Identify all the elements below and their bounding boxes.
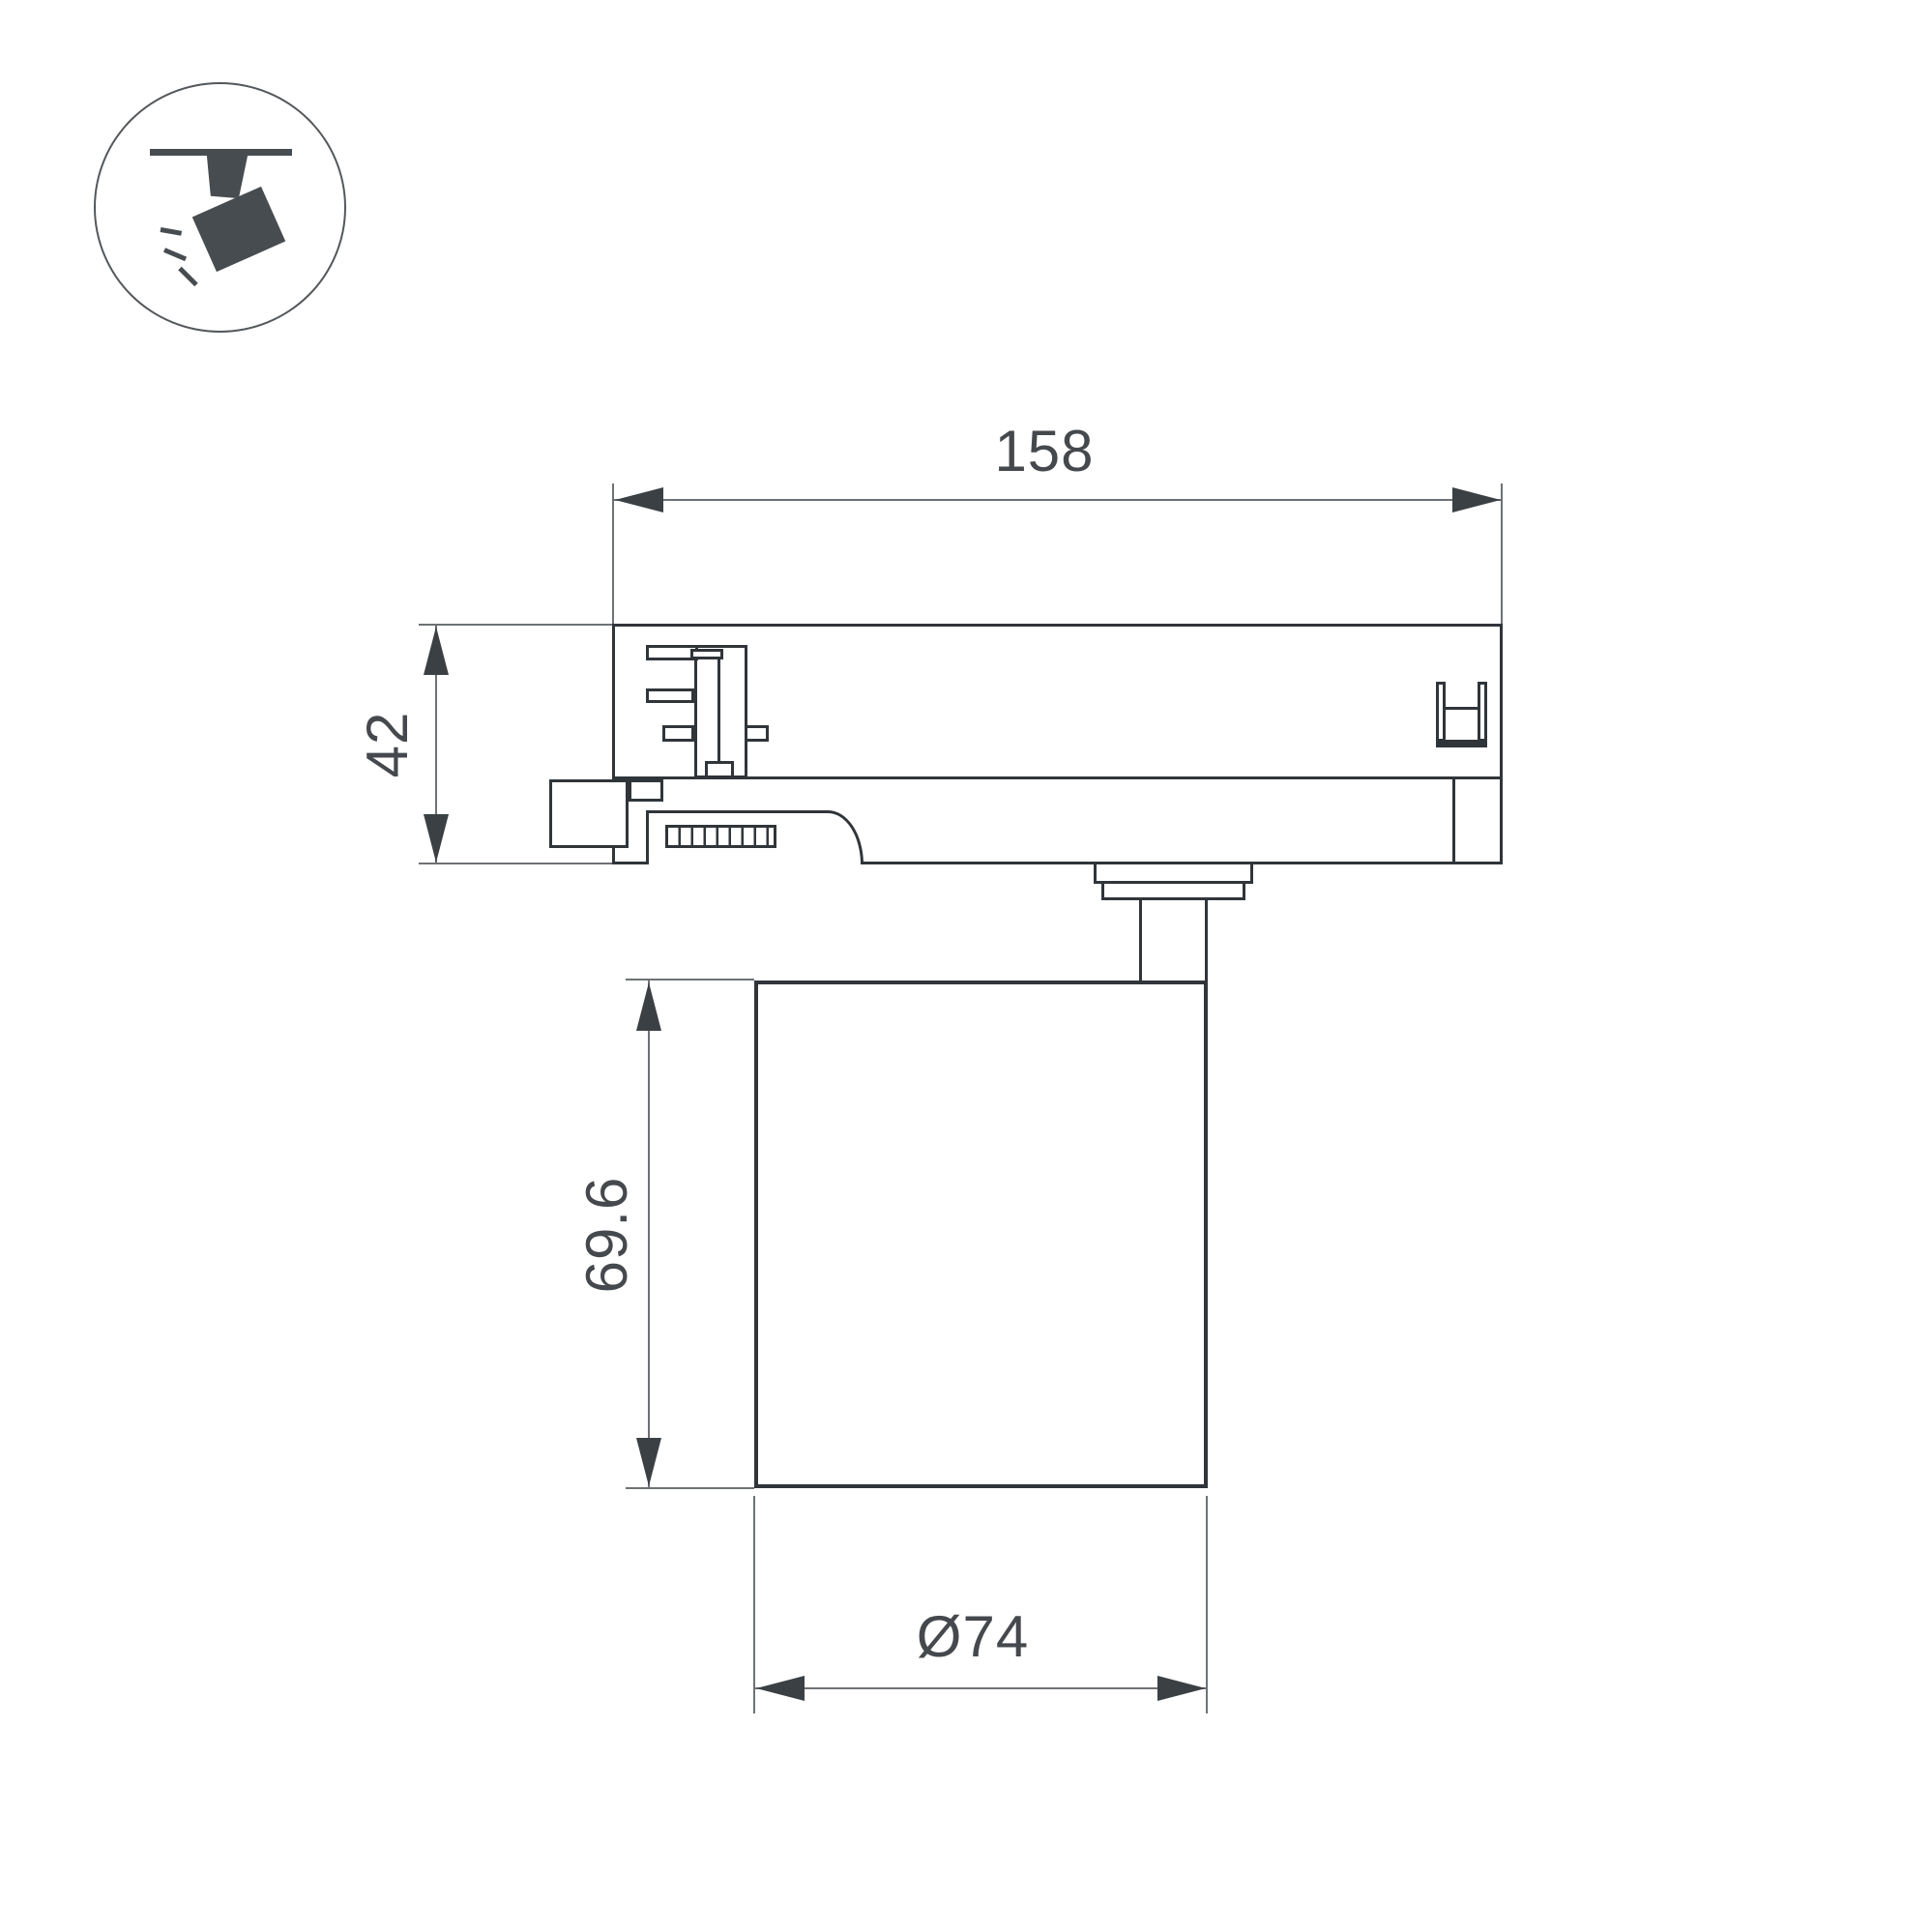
dimension-label-lamp-height: 69.6 bbox=[577, 1138, 637, 1332]
arrowhead-right-icon bbox=[1157, 1676, 1206, 1701]
dimension-line bbox=[648, 981, 650, 1488]
u-bracket-left-prong bbox=[1436, 682, 1446, 742]
dimension-label-height: 42 bbox=[358, 648, 418, 841]
latch-step bbox=[629, 779, 663, 802]
spotlight-head-icon bbox=[192, 187, 285, 272]
extension-line bbox=[626, 1487, 754, 1489]
spotlight-stem-icon bbox=[206, 155, 249, 199]
ridged-grip bbox=[665, 825, 776, 848]
extension-line bbox=[1501, 483, 1503, 624]
extension-line bbox=[419, 624, 612, 626]
contact-prong-bottom bbox=[662, 725, 694, 742]
dimension-label-diameter: Ø74 bbox=[876, 1607, 1069, 1667]
track-bar-icon bbox=[150, 149, 292, 156]
latch-box bbox=[549, 779, 629, 848]
arrowhead-right-icon bbox=[1452, 487, 1501, 512]
stem bbox=[1139, 897, 1208, 983]
arrowhead-left-icon bbox=[615, 487, 663, 512]
dimension-line bbox=[613, 499, 1503, 501]
arrowhead-up-icon bbox=[424, 627, 449, 675]
light-ray-icon bbox=[161, 227, 183, 236]
extension-line bbox=[626, 979, 754, 981]
light-ray-icon bbox=[178, 267, 198, 287]
extension-line bbox=[419, 863, 612, 864]
arrowhead-left-icon bbox=[756, 1676, 805, 1701]
dimension-label-width: 158 bbox=[948, 422, 1141, 482]
extension-line bbox=[753, 1496, 755, 1713]
extension-line bbox=[1206, 1496, 1208, 1713]
arrowhead-down-icon bbox=[424, 814, 449, 863]
contact-side-tab bbox=[745, 725, 769, 742]
track-spotlight-icon bbox=[94, 82, 346, 333]
band-divider-line bbox=[1452, 779, 1455, 864]
lamp-body bbox=[754, 981, 1208, 1488]
arrowhead-down-icon bbox=[636, 1438, 661, 1486]
u-bracket-crossbar bbox=[1444, 707, 1479, 710]
arrowhead-up-icon bbox=[636, 982, 661, 1031]
extension-line bbox=[612, 483, 614, 624]
light-ray-icon bbox=[163, 248, 187, 261]
u-bracket-bottom bbox=[1436, 740, 1487, 747]
contact-assembly-outline bbox=[694, 645, 747, 778]
contact-foot-block bbox=[705, 761, 734, 778]
contact-prong-middle bbox=[646, 688, 694, 703]
dimension-line bbox=[754, 1687, 1208, 1689]
contact-post-cap bbox=[690, 649, 723, 659]
u-bracket-right-prong bbox=[1478, 682, 1487, 742]
drawing-canvas: 158 42 69.6 Ø74 bbox=[0, 0, 1932, 1932]
contact-post-line bbox=[717, 657, 720, 761]
